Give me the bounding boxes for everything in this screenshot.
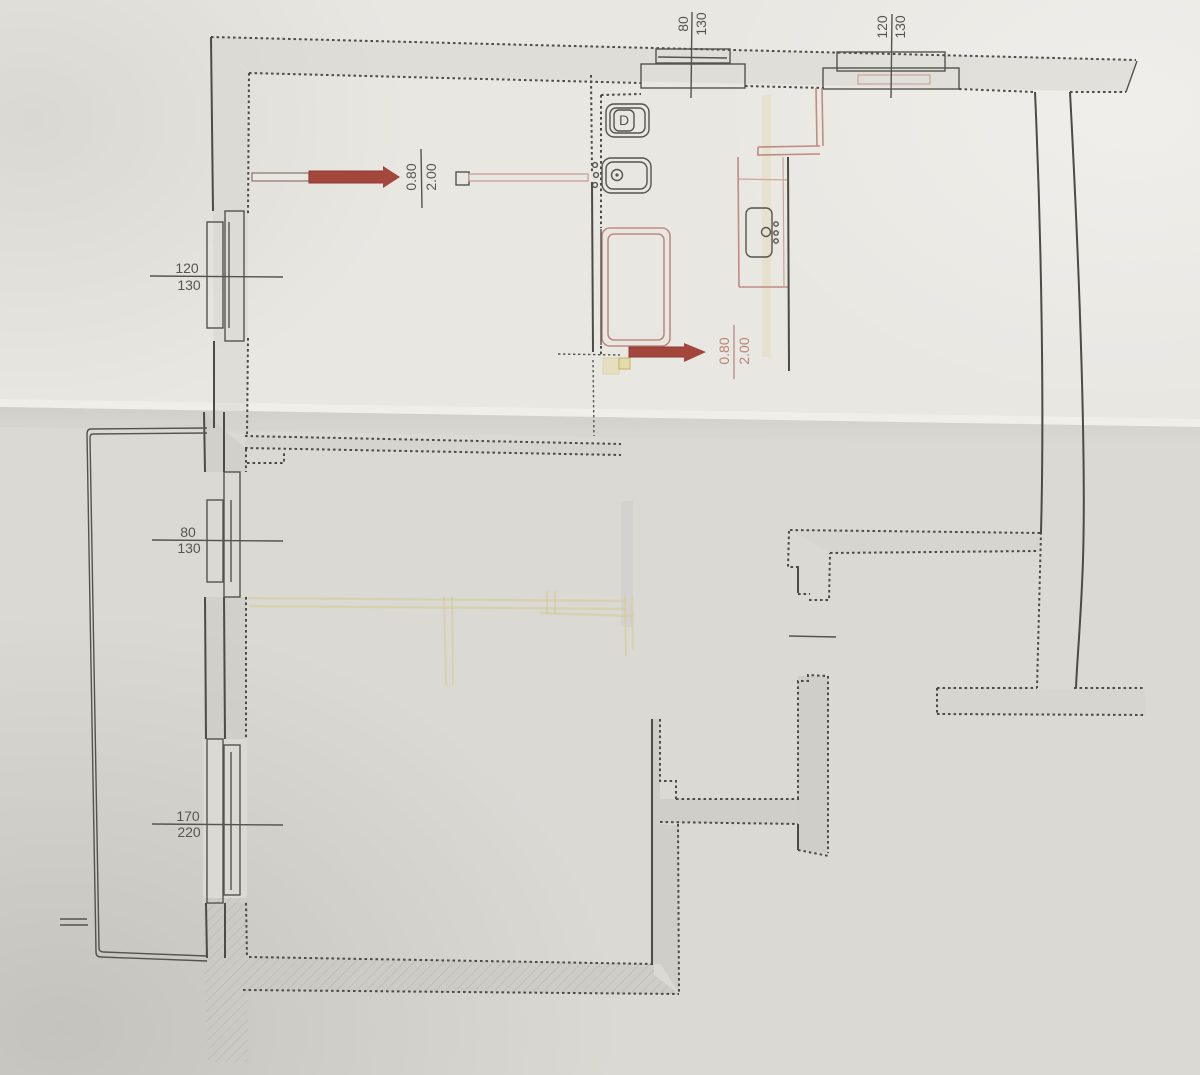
svg-text:0.80: 0.80 [403,163,419,190]
svg-text:2.00: 2.00 [736,337,752,364]
svg-text:120: 120 [175,260,199,276]
svg-text:130: 130 [892,15,908,39]
svg-text:D: D [619,112,629,128]
svg-text:130: 130 [693,12,709,36]
svg-text:80: 80 [180,524,196,540]
svg-text:120: 120 [874,15,890,39]
svg-text:130: 130 [177,540,201,556]
svg-text:0.80: 0.80 [716,337,732,364]
svg-text:220: 220 [177,824,201,840]
svg-text:170: 170 [176,808,200,824]
svg-text:80: 80 [675,16,691,32]
svg-text:2.00: 2.00 [423,163,439,190]
svg-text:130: 130 [177,277,201,293]
